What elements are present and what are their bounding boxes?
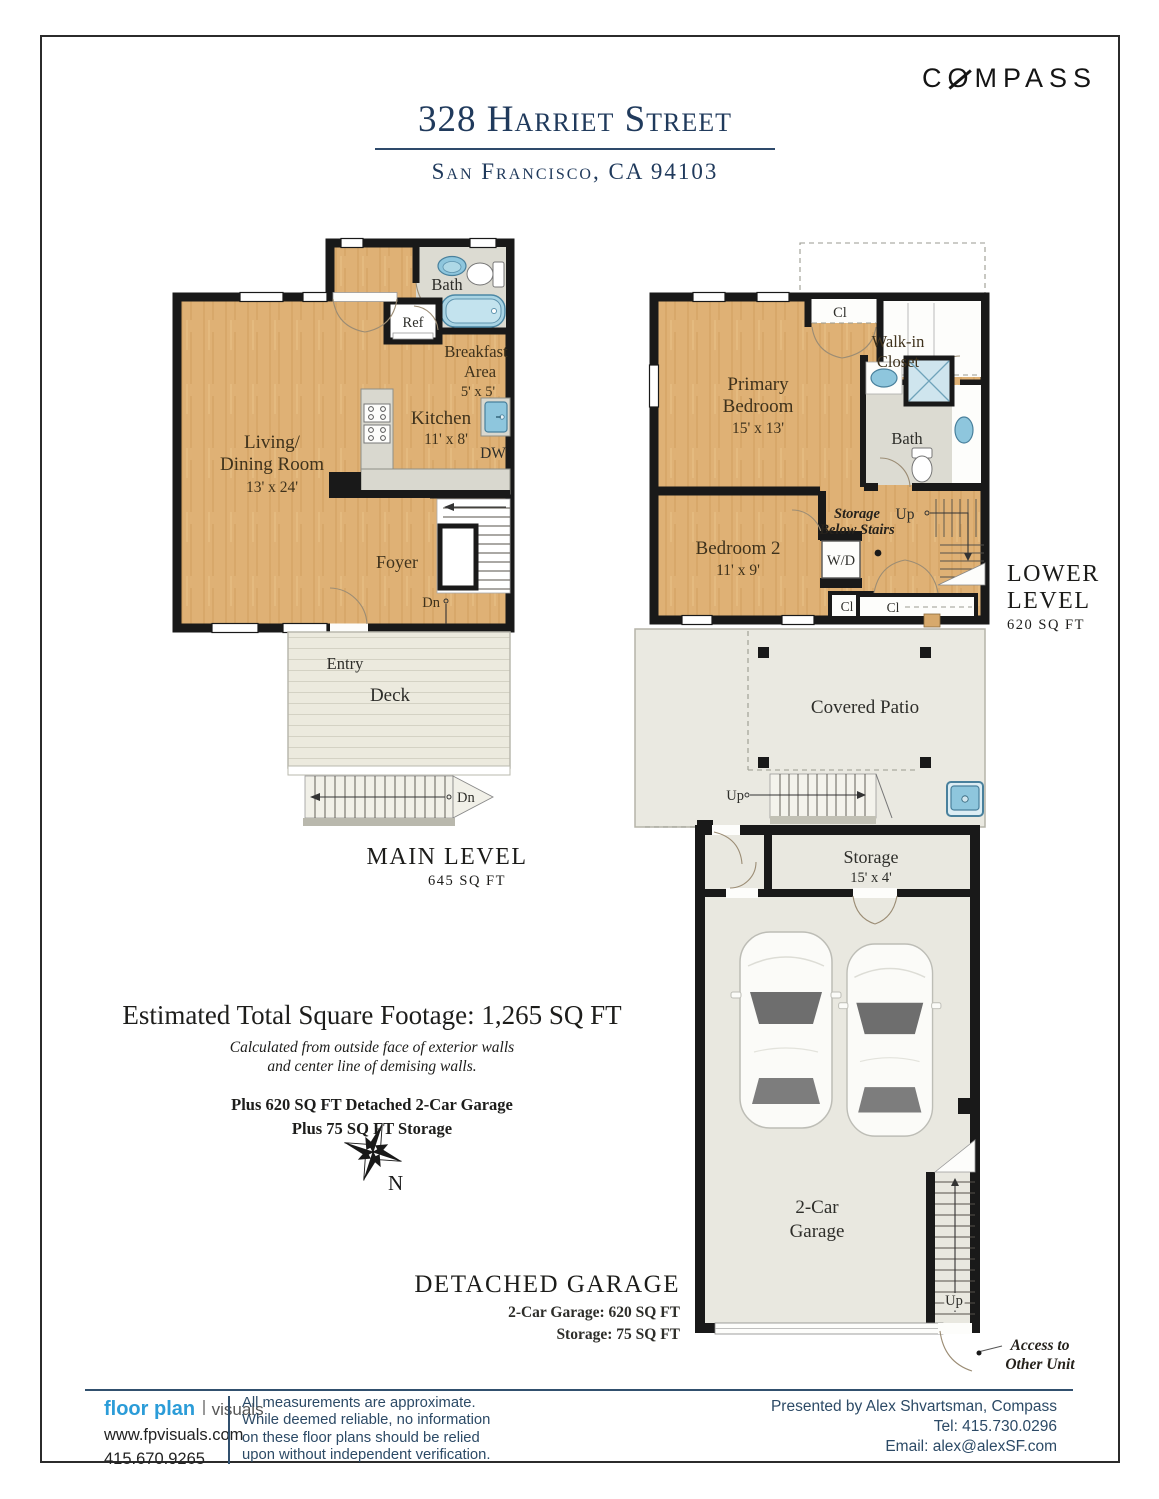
lower-level-title-2: LEVEL xyxy=(1007,588,1090,614)
floor-plan-page: COMPASS 328 Harriet Street San Francisco… xyxy=(0,0,1159,1499)
fpvisuals-website[interactable]: www.fpvisuals.com xyxy=(104,1426,243,1445)
deck-label: Deck xyxy=(370,685,411,706)
footer-divider xyxy=(228,1396,230,1464)
living-room-label-2: Dining Room xyxy=(220,454,324,475)
entry-label: Entry xyxy=(327,654,364,673)
sink-icon xyxy=(438,257,466,276)
agent-tel: Tel: 415.730.0296 xyxy=(771,1417,1057,1437)
north-label: N xyxy=(388,1171,403,1195)
lower-toilet-icon xyxy=(912,448,932,482)
entry-door-opening xyxy=(330,624,368,633)
main-level-area: 645 SQ FT xyxy=(428,873,506,889)
bathtub-icon xyxy=(441,295,505,327)
kitchen-dims: 11' x 8' xyxy=(424,431,468,448)
washer-dryer-label: W/D xyxy=(827,553,855,569)
kitchen-sink-icon xyxy=(485,402,507,432)
covered-patio xyxy=(635,629,985,834)
additional-area-note: Plus 620 SQ FT Detached 2-Car Garage Plu… xyxy=(72,1093,672,1141)
closet-small-label: Cl xyxy=(841,599,854,614)
toilet-icon xyxy=(467,262,504,287)
garage-storage-label: Storage xyxy=(844,847,899,867)
dw-label: DW xyxy=(480,445,506,462)
foyer-label: Foyer xyxy=(376,552,418,572)
foyer-dn-label: Dn xyxy=(422,595,440,611)
lower-up-label: Up xyxy=(896,506,915,523)
patio-up-label: Up xyxy=(726,788,744,804)
breakfast-label-2: Area xyxy=(464,362,497,381)
car-1 xyxy=(731,932,841,1128)
disclaimer: All measurements are approximate. While … xyxy=(242,1395,490,1465)
kitchen-label: Kitchen xyxy=(411,408,472,429)
garage-up-label: Up xyxy=(945,1293,963,1309)
floor-plan-drawing: Living/ Dining Room 13' x 24' Kitchen 11… xyxy=(0,0,1159,1499)
bedroom2-label: Bedroom 2 xyxy=(696,538,781,559)
walkin-closet-label: Walk-in xyxy=(872,332,925,351)
access-label: Access to xyxy=(1010,1337,1070,1354)
living-room-dims: 13' x 24' xyxy=(246,479,298,496)
ref-label: Ref xyxy=(403,315,424,331)
storage-below-stairs-label: Storage xyxy=(834,506,880,522)
presented-by: Presented by Alex Shvartsman, Compass xyxy=(771,1397,1057,1417)
deck xyxy=(288,632,510,826)
lower-level-area: 620 SQ FT xyxy=(1007,617,1085,633)
footer-rule xyxy=(85,1389,1073,1391)
fpvisuals-phone: 415.670.9265 xyxy=(104,1450,205,1469)
primary-bedroom-label: Primary xyxy=(727,374,789,395)
detached-garage-sub1: 2-Car Garage: 620 SQ FT xyxy=(508,1304,681,1321)
garage-label-2: Garage xyxy=(790,1221,845,1242)
closet-top-label: Cl xyxy=(833,305,847,321)
agent-email[interactable]: Email: alex@alexSF.com xyxy=(771,1437,1057,1457)
main-level-title: MAIN LEVEL xyxy=(367,844,528,870)
lower-sink2-icon xyxy=(955,417,973,443)
detached-garage-sub2: Storage: 75 SQ FT xyxy=(556,1326,680,1343)
covered-patio-label: Covered Patio xyxy=(811,697,919,718)
breakfast-dims: 5' x 5' xyxy=(461,384,495,400)
car-2 xyxy=(839,944,941,1136)
access-label-2: Other Unit xyxy=(1005,1356,1075,1373)
main-level-plan: Living/ Dining Room 13' x 24' Kitchen 11… xyxy=(177,239,527,890)
detached-garage-title: DETACHED GARAGE xyxy=(414,1271,680,1298)
breakfast-label: Breakfast xyxy=(444,342,508,361)
total-square-footage: Estimated Total Square Footage: 1,265 SQ… xyxy=(72,1000,672,1031)
walkin-closet-label-2: Closet xyxy=(877,352,920,371)
deck-dn-label: Dn xyxy=(457,790,475,806)
patio-sink-icon xyxy=(947,782,983,816)
summary-block: Estimated Total Square Footage: 1,265 SQ… xyxy=(72,1000,672,1141)
logo-divider xyxy=(203,1400,205,1415)
main-bath-label: Bath xyxy=(431,275,463,294)
bedroom2-dims: 11' x 9' xyxy=(716,562,760,579)
lower-bath-label: Bath xyxy=(891,429,923,448)
lower-level-plan: Primary Bedroom 15' x 13' Cl Walk-in Clo… xyxy=(635,243,1100,834)
living-room-label: Living/ xyxy=(244,432,301,453)
garage-label: 2-Car xyxy=(795,1197,839,1218)
primary-bedroom-label-2: Bedroom xyxy=(723,396,794,417)
agent-info: Presented by Alex Shvartsman, Compass Te… xyxy=(771,1397,1057,1457)
garage-storage-dims: 15' x 4' xyxy=(850,870,891,886)
storage-below-stairs-label-2: Below Stairs xyxy=(818,522,895,538)
calculation-note: Calculated from outside face of exterior… xyxy=(72,1038,672,1077)
primary-bedroom-dims: 15' x 13' xyxy=(732,420,784,437)
lower-level-title: LOWER xyxy=(1007,561,1100,587)
fpvisuals-logo: floor planvisuals xyxy=(104,1398,264,1421)
closet-wide-label: Cl xyxy=(887,600,900,615)
